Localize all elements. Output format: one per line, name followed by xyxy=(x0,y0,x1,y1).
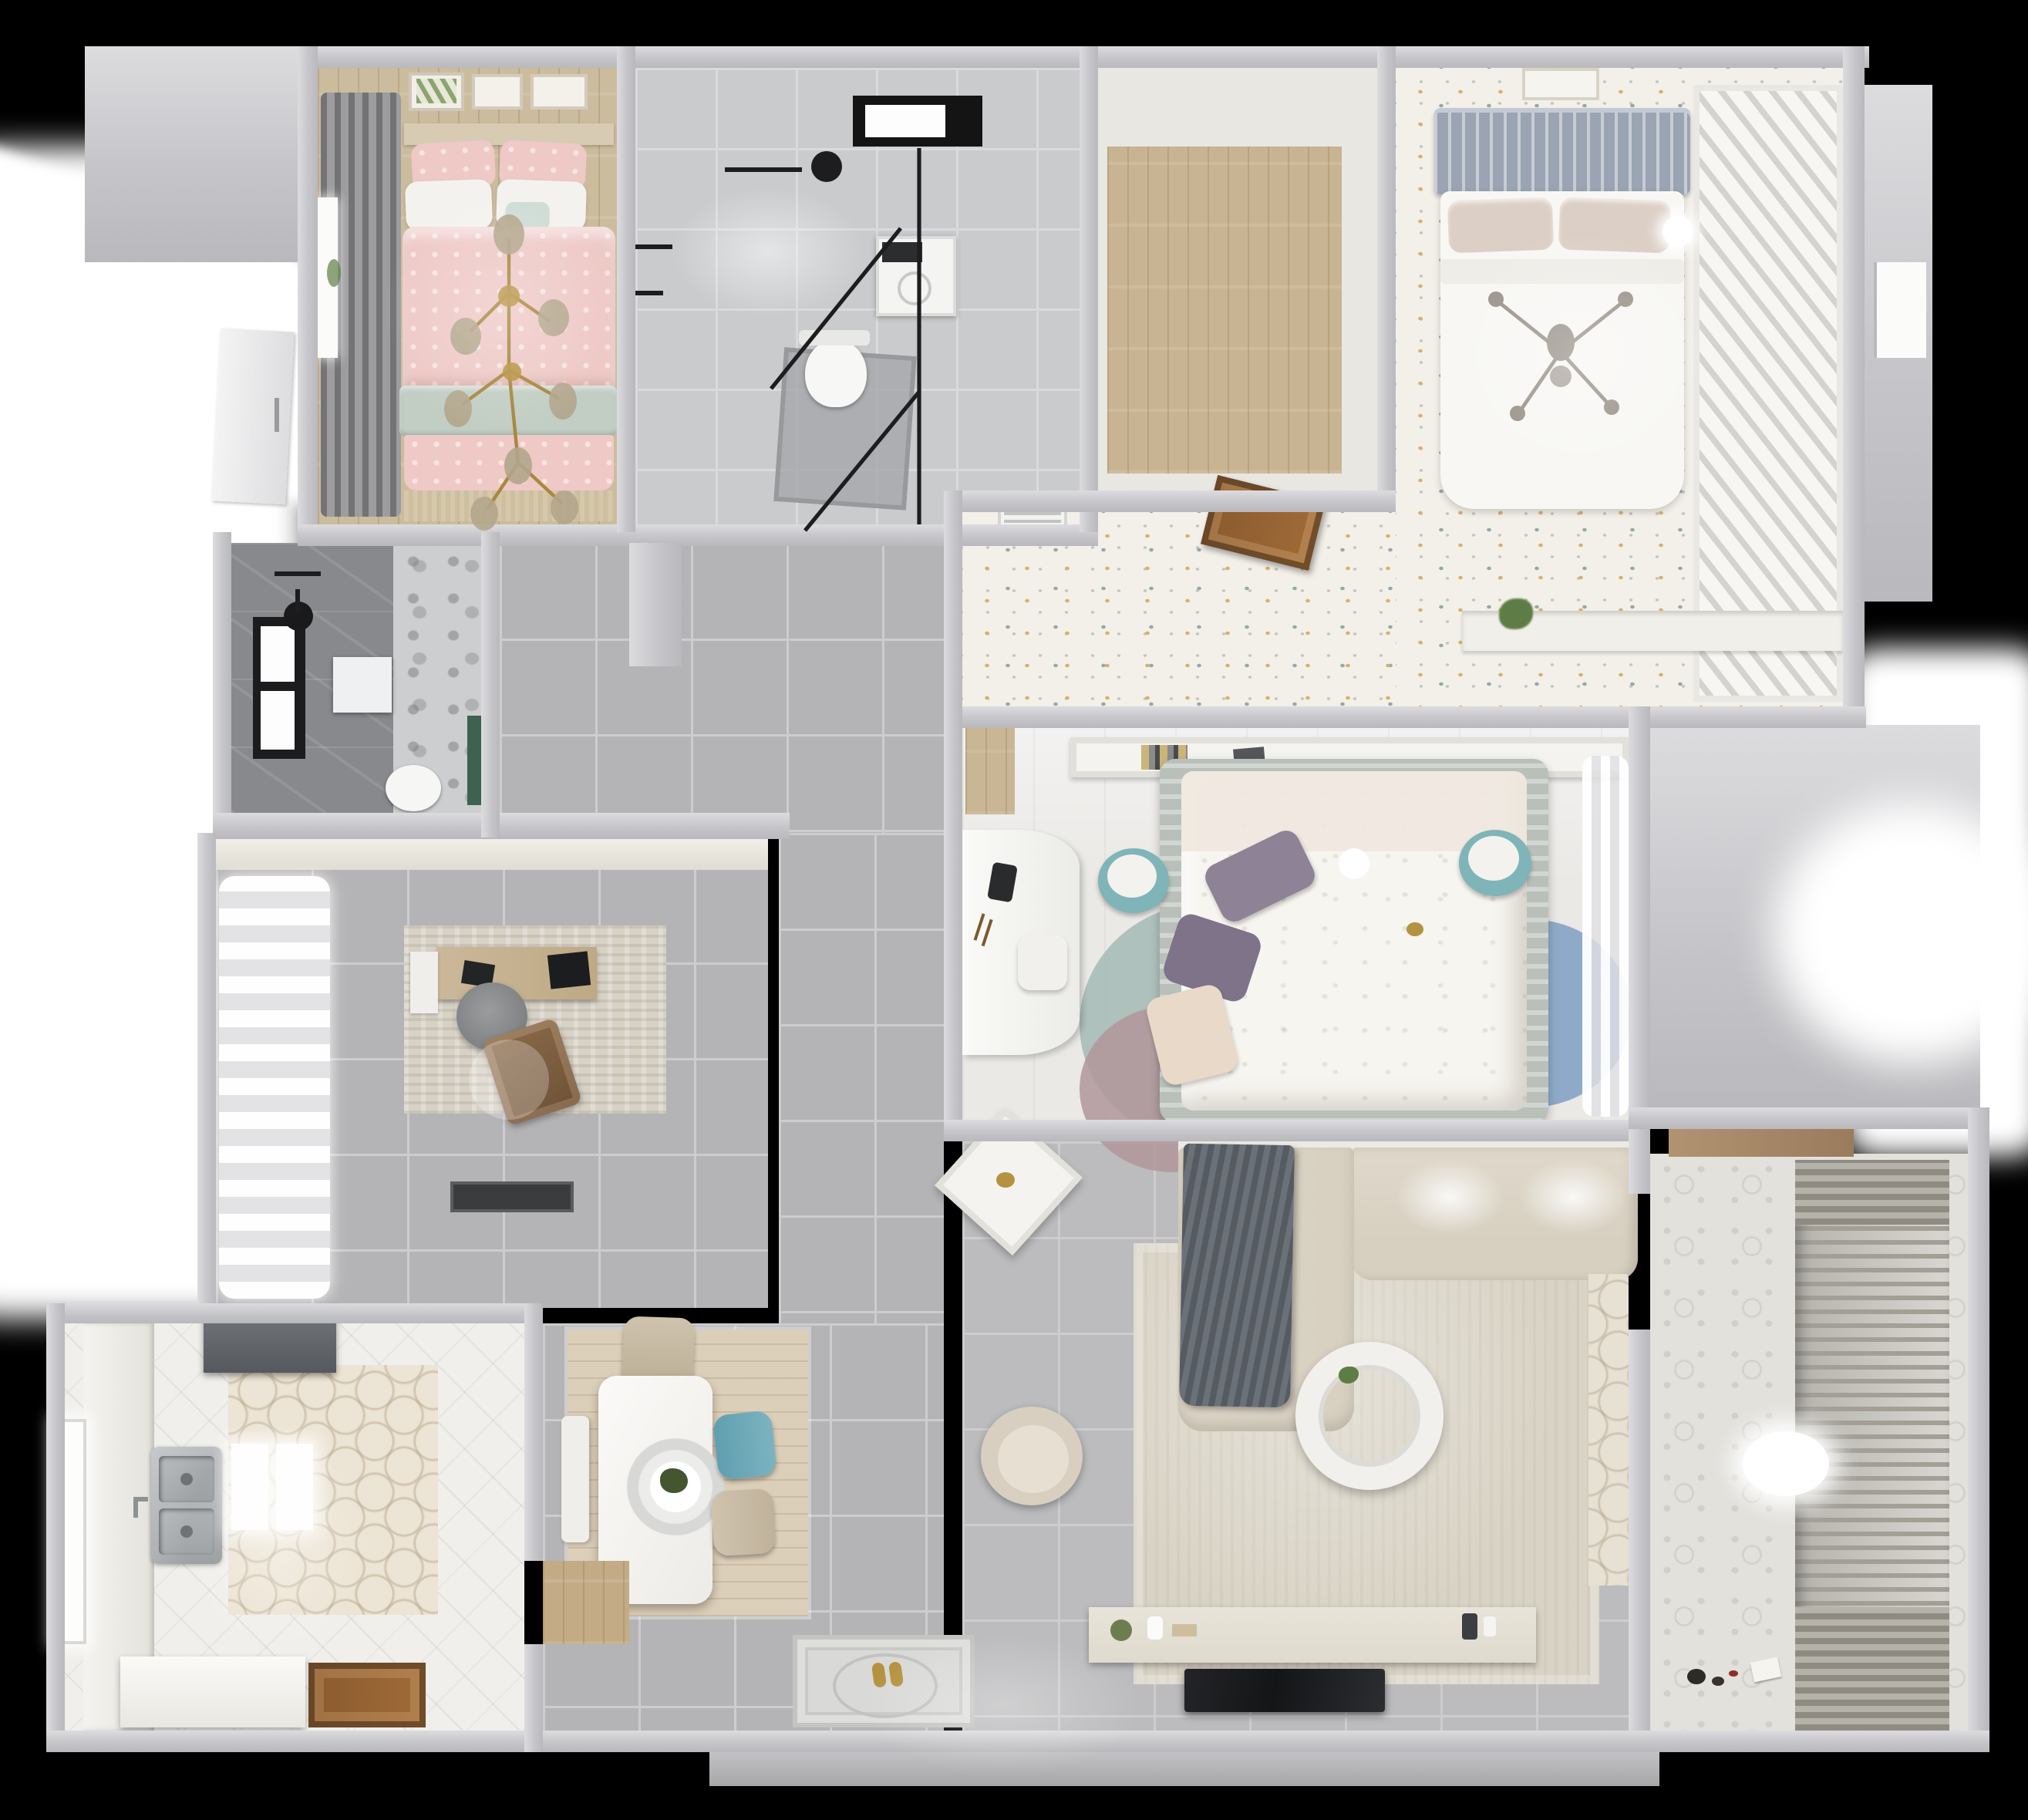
kitchen-wood-door xyxy=(308,1663,426,1727)
dining-chair-beige2 xyxy=(711,1488,776,1556)
kitchen-island xyxy=(120,1657,305,1727)
dining-bench xyxy=(561,1416,589,1542)
shower-room-window-pane xyxy=(261,691,295,750)
wall xyxy=(1080,46,1098,532)
kids-art-frame xyxy=(1522,68,1599,100)
wall-art-frame xyxy=(531,74,588,110)
wall xyxy=(1629,1731,1989,1752)
wall xyxy=(46,1731,1659,1752)
wall xyxy=(197,833,216,1319)
kids-headboard xyxy=(1434,108,1690,194)
wall xyxy=(1629,706,1650,1141)
dining-chair-teal xyxy=(712,1410,777,1480)
shelf-plant xyxy=(1499,598,1533,629)
sofa-light-glow xyxy=(1396,1160,1504,1234)
shower-room-toilet xyxy=(386,765,441,811)
rack-bar xyxy=(1795,1160,1949,1225)
pouf-top xyxy=(1468,836,1519,881)
desk-chair2 xyxy=(1018,935,1067,990)
console-book xyxy=(1172,1624,1197,1636)
study-monitor xyxy=(547,951,591,989)
wall xyxy=(298,524,1098,546)
wall xyxy=(46,1303,65,1752)
toilet-tank xyxy=(799,330,870,345)
balcony-threshold-tiles xyxy=(1588,1274,1629,1586)
bedroom2-closet-wood xyxy=(965,728,1015,814)
wall xyxy=(1629,1107,1989,1129)
shower-head xyxy=(284,602,313,631)
room-glow xyxy=(864,1635,1141,1774)
study-cabinet-band xyxy=(216,839,768,870)
wall xyxy=(944,490,1396,512)
pendant-plant-centerpiece xyxy=(660,1468,688,1493)
wall xyxy=(944,706,962,1141)
wall xyxy=(213,813,790,839)
wall xyxy=(524,1644,543,1752)
kids-wardrobe-slat-doors xyxy=(1693,85,1843,702)
wall-art-leaf xyxy=(416,79,456,103)
study-doormat xyxy=(450,1181,574,1212)
study-desk-return xyxy=(410,952,438,1013)
console-vase2 xyxy=(1484,1616,1496,1636)
wall-tv xyxy=(1184,1669,1385,1712)
wall xyxy=(524,1303,543,1561)
coffee-table xyxy=(1295,1342,1444,1490)
balcony-ceiling-light xyxy=(1743,1431,1829,1496)
floor-toys xyxy=(1687,1669,1706,1684)
exterior-wall-band xyxy=(85,46,301,262)
throw-blanket xyxy=(1179,1144,1295,1407)
hall-upper xyxy=(500,543,944,833)
kitchen-door-threshold xyxy=(543,1561,629,1644)
topright-window xyxy=(1874,262,1926,358)
wall xyxy=(46,1303,543,1323)
room-glow xyxy=(1450,231,1712,478)
side-table-decor xyxy=(996,1172,1015,1188)
hall-mid xyxy=(779,833,944,1323)
wall xyxy=(944,706,1866,728)
study-curtains xyxy=(219,876,330,1299)
closet-wood-floor xyxy=(1107,147,1342,474)
entry-door-handle xyxy=(275,398,279,432)
wall xyxy=(481,532,500,838)
wall xyxy=(1968,1107,1989,1752)
wall xyxy=(1629,1120,1650,1194)
room-glow xyxy=(185,1434,370,1650)
window-plant xyxy=(327,259,341,287)
dining-chair-beige xyxy=(622,1316,696,1383)
floor-plan-render xyxy=(0,0,2028,1820)
wall-art-frame xyxy=(472,74,523,110)
washing-machine-drum xyxy=(898,271,931,305)
wall xyxy=(1843,46,1865,725)
bedroom2-sheer-curtains xyxy=(1582,756,1629,1117)
entry-door-exterior xyxy=(211,329,295,505)
wall xyxy=(944,1120,1647,1141)
console-speaker xyxy=(1462,1613,1477,1640)
armchair-cushion xyxy=(998,1425,1069,1493)
wall xyxy=(298,46,318,543)
rack-bar xyxy=(1795,1607,1949,1731)
shower-room-window-pane xyxy=(261,626,295,682)
gold-accent xyxy=(1406,922,1423,936)
wall xyxy=(1377,46,1396,512)
bathroom-window-glass xyxy=(865,105,945,137)
wall xyxy=(1629,1330,1650,1752)
wall xyxy=(617,46,635,532)
wall xyxy=(213,532,231,828)
wall xyxy=(629,543,682,666)
master-duvet-foot xyxy=(404,435,614,490)
console-vase xyxy=(1147,1616,1163,1640)
pouf-top xyxy=(1107,854,1157,898)
shower-tray-small xyxy=(333,657,392,713)
wall xyxy=(944,490,962,728)
washing-machine-panel xyxy=(882,242,922,262)
sofa-light-glow xyxy=(1519,1160,1627,1234)
room-glow xyxy=(386,185,617,432)
toilet xyxy=(805,339,867,407)
bed-foot-rug xyxy=(404,490,614,521)
